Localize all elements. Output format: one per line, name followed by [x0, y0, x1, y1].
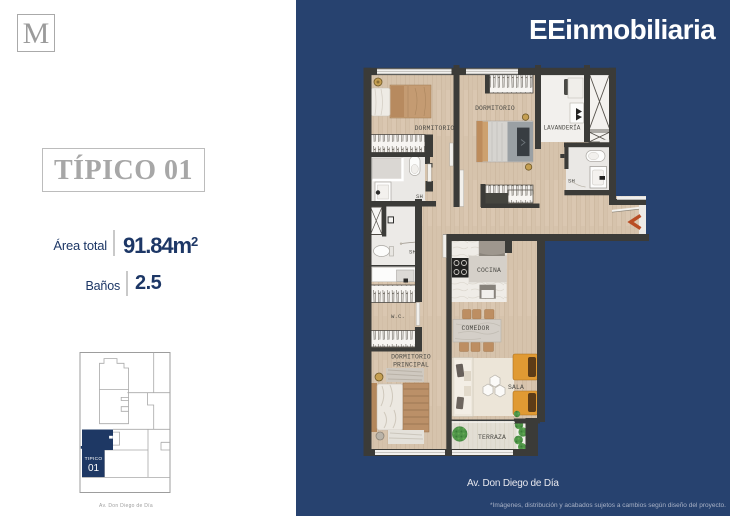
svg-text:SALA: SALA: [508, 384, 524, 391]
svg-text:TERRAZA: TERRAZA: [478, 434, 506, 441]
svg-text:SH: SH: [409, 249, 416, 256]
svg-text:COMEDOR: COMEDOR: [462, 325, 490, 332]
svg-text:DORMITORIO: DORMITORIO: [415, 125, 455, 132]
svg-text:TIPICO: TIPICO: [85, 456, 103, 462]
svg-text:SH: SH: [568, 178, 575, 185]
svg-text:PRINCIPAL: PRINCIPAL: [393, 362, 429, 369]
svg-text:COCINA: COCINA: [477, 267, 501, 274]
svg-text:DORMITORIO: DORMITORIO: [391, 354, 431, 361]
svg-text:DORMITORIO: DORMITORIO: [475, 105, 515, 112]
svg-text:SH: SH: [416, 193, 423, 200]
svg-text:LAVANDERÍA: LAVANDERÍA: [543, 125, 580, 132]
svg-text:W.C.: W.C.: [391, 313, 405, 320]
svg-text:01: 01: [88, 463, 100, 474]
